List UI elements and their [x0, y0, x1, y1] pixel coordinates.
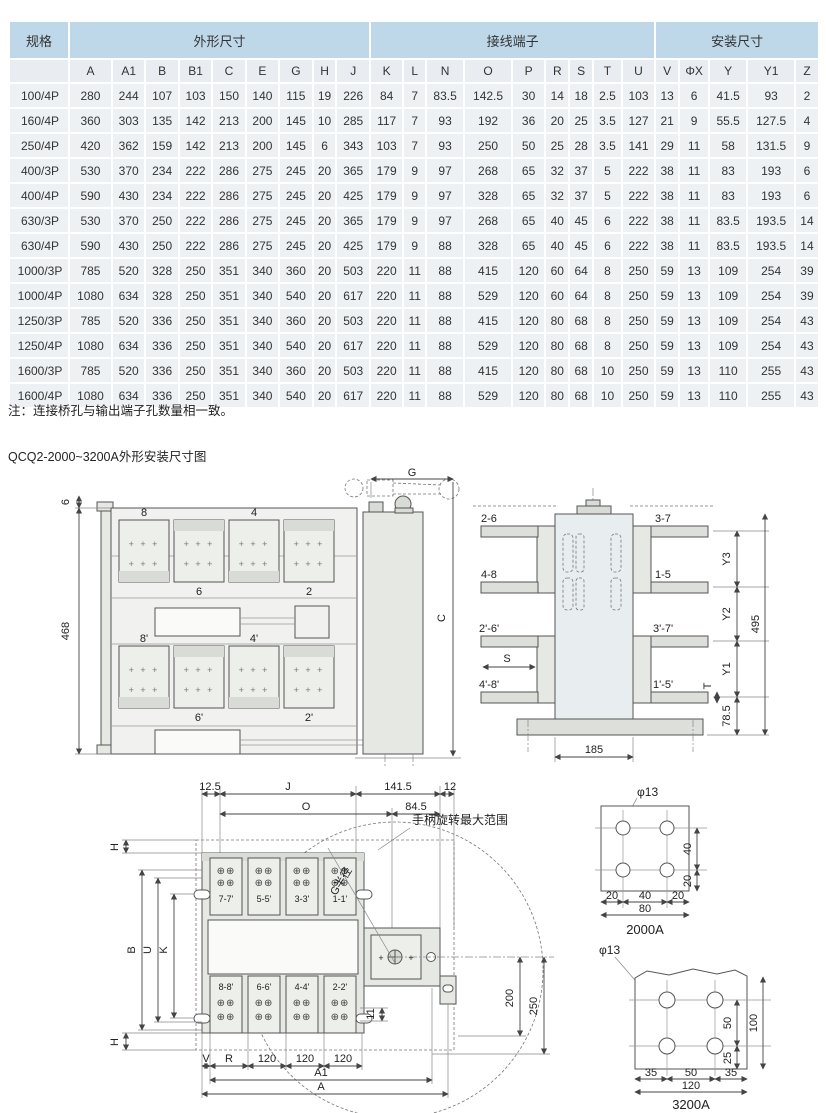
value-cell: 634	[113, 284, 144, 307]
value-cell: 1080	[70, 284, 111, 307]
value-cell: 360	[280, 359, 311, 382]
value-cell: 14	[796, 209, 818, 232]
svg-text:+ + +: + + +	[129, 559, 160, 569]
value-cell: 365	[337, 159, 368, 182]
value-cell: 93	[427, 109, 463, 132]
value-cell: 303	[113, 109, 144, 132]
value-cell: 530	[70, 209, 111, 232]
column-header: P	[513, 60, 544, 82]
dim-C: C	[436, 614, 448, 622]
value-cell: 142.5	[465, 84, 511, 107]
value-cell: 254	[748, 259, 794, 282]
dim-185: 185	[585, 744, 603, 756]
svg-text:⊕⊕: ⊕⊕	[293, 878, 312, 889]
dim-Y3: Y3	[721, 552, 733, 565]
value-cell: 503	[337, 309, 368, 332]
value-cell: 286	[213, 209, 244, 232]
value-cell: 120	[513, 384, 544, 407]
drive-tower	[363, 512, 423, 754]
value-cell: 351	[213, 259, 244, 282]
value-cell: 109	[710, 334, 746, 357]
value-cell: 343	[337, 134, 368, 157]
value-cell: 11	[404, 359, 425, 382]
value-cell: 109	[710, 259, 746, 282]
value-cell: 222	[623, 184, 654, 207]
value-cell: 222	[180, 184, 211, 207]
table-row: 100/4P2802441071031501401151922684783.51…	[10, 84, 818, 107]
spec-cell: 1000/4P	[10, 284, 68, 307]
value-cell: 68	[570, 309, 592, 332]
dim-B: B	[126, 946, 138, 953]
base-plate	[517, 719, 703, 735]
value-cell: 340	[247, 259, 278, 282]
value-cell: 20	[546, 109, 568, 132]
value-cell: 59	[656, 384, 678, 407]
value-cell: 45	[570, 209, 592, 232]
value-cell: 529	[465, 334, 511, 357]
value-cell: 21	[656, 109, 678, 132]
value-cell: 13	[680, 259, 708, 282]
value-cell: 222	[623, 159, 654, 182]
svg-text:35: 35	[725, 1067, 737, 1079]
value-cell: 222	[623, 209, 654, 232]
column-header: B1	[180, 60, 211, 82]
dim-H-bottom: H	[109, 1038, 121, 1046]
table-row: 1000/4P108063432825035134054020617220118…	[10, 284, 818, 307]
value-cell: 20	[314, 259, 336, 282]
value-cell: 14	[546, 84, 568, 107]
svg-text:+ + +: + + +	[184, 539, 215, 549]
value-cell: 634	[113, 334, 144, 357]
value-cell: 150	[213, 84, 244, 107]
terminal-label-8p: 8'	[140, 633, 148, 645]
value-cell: 8	[594, 334, 621, 357]
value-cell: 250	[623, 259, 654, 282]
value-cell: 213	[213, 109, 244, 132]
value-cell: 540	[280, 284, 311, 307]
svg-text:⊕⊕: ⊕⊕	[293, 998, 312, 1009]
value-cell: 244	[113, 84, 144, 107]
value-cell: 20	[314, 359, 336, 382]
value-cell: 5	[594, 159, 621, 182]
column-group-header: 规格	[10, 22, 68, 58]
table-header-columns: AA1BB1CEGHJKLNOPRSTUVΦXYY1Z	[10, 60, 818, 82]
svg-text:+ + +: + + +	[294, 685, 325, 695]
value-cell: 193	[748, 159, 794, 182]
value-cell: 38	[656, 184, 678, 207]
value-cell: 1080	[70, 334, 111, 357]
value-cell: 68	[570, 384, 592, 407]
terminal-3p7p: 3'-7'	[653, 623, 673, 635]
value-cell: 6	[594, 209, 621, 232]
value-cell: 220	[371, 359, 402, 382]
dim-84-5: 84.5	[405, 801, 426, 813]
svg-text:⊕⊕: ⊕⊕	[217, 998, 236, 1009]
caption-2000A: 2000A	[626, 922, 664, 937]
value-cell: 65	[513, 184, 544, 207]
value-cell: 65	[513, 209, 544, 232]
caption-3200A: 3200A	[672, 1097, 710, 1112]
value-cell: 9	[404, 209, 425, 232]
column-group-header: 安装尺寸	[656, 22, 818, 58]
value-cell: 80	[546, 384, 568, 407]
value-cell: 83.5	[427, 84, 463, 107]
value-cell: 80	[546, 309, 568, 332]
value-cell: 179	[371, 234, 402, 257]
value-cell: 64	[570, 284, 592, 307]
value-cell: 6	[680, 84, 708, 107]
phi-13-label-2: φ13	[599, 943, 620, 957]
value-cell: 142	[180, 109, 211, 132]
column-header: C	[213, 60, 244, 82]
value-cell: 38	[656, 209, 678, 232]
value-cell: 425	[337, 184, 368, 207]
value-cell: 58	[710, 134, 746, 157]
dim-S: S	[503, 653, 510, 665]
terminal-15: 1-5	[655, 569, 671, 581]
value-cell: 135	[146, 109, 177, 132]
value-cell: 250	[180, 334, 211, 357]
value-cell: 3.5	[594, 109, 621, 132]
value-cell: 39	[796, 284, 818, 307]
value-cell: 275	[247, 159, 278, 182]
column-header: S	[570, 60, 592, 82]
value-cell: 7	[404, 134, 425, 157]
svg-text:+ + +: + + +	[294, 559, 325, 569]
value-cell: 6	[796, 184, 818, 207]
svg-text:⊕⊕: ⊕⊕	[255, 866, 274, 877]
value-cell: 109	[710, 309, 746, 332]
datasheet-page: 规格外形尺寸接线端子安装尺寸 AA1BB1CEGHJKLNOPRSTUVΦXYY…	[0, 0, 826, 1113]
svg-text:⊕⊕: ⊕⊕	[255, 878, 274, 889]
value-cell: 68	[570, 359, 592, 382]
table-row: 1250/4P108063433625035134054020617220118…	[10, 334, 818, 357]
value-cell: 103	[371, 134, 402, 157]
value-cell: 254	[748, 309, 794, 332]
value-cell: 9	[404, 159, 425, 182]
table-row: 630/3P5303702502222862752452036517999726…	[10, 209, 818, 232]
value-cell: 11	[404, 309, 425, 332]
value-cell: 13	[656, 84, 678, 107]
value-cell: 65	[513, 159, 544, 182]
table-row: 1000/3P785520328250351340360205032201188…	[10, 259, 818, 282]
value-cell: 84	[371, 84, 402, 107]
value-cell: 220	[371, 309, 402, 332]
value-cell: 785	[70, 259, 111, 282]
dim-50: 50	[722, 1017, 734, 1029]
column-header: J	[337, 60, 368, 82]
value-cell: 213	[213, 134, 244, 157]
column-header: Y	[710, 60, 746, 82]
value-cell: 351	[213, 309, 244, 332]
value-cell: 11	[404, 334, 425, 357]
value-cell: 59	[656, 284, 678, 307]
svg-text:⊕⊕: ⊕⊕	[293, 1012, 312, 1023]
svg-text:⊕⊕: ⊕⊕	[255, 1012, 274, 1023]
svg-text:+ + +: + + +	[294, 539, 325, 549]
terminal-1p5p: 1'-5'	[653, 679, 673, 691]
value-cell: 88	[427, 259, 463, 282]
terminal-66: 6-6'	[257, 982, 272, 992]
value-cell: 245	[280, 184, 311, 207]
value-cell: 785	[70, 359, 111, 382]
value-cell: 255	[748, 359, 794, 382]
value-cell: 425	[337, 234, 368, 257]
value-cell: 250	[180, 359, 211, 382]
value-cell: 222	[180, 159, 211, 182]
value-cell: 145	[280, 134, 311, 157]
value-cell: 8	[594, 284, 621, 307]
value-cell: 430	[113, 234, 144, 257]
value-cell: 115	[280, 84, 311, 107]
value-cell: 336	[146, 334, 177, 357]
value-cell: 179	[371, 184, 402, 207]
value-cell: 64	[570, 259, 592, 282]
dim-11: 11	[365, 1008, 377, 1019]
hole-pattern-2000A: φ13 40 20 20 40 20 80 2000A	[595, 785, 707, 937]
table-row: 630/4P5904302502222862752452042517998832…	[10, 234, 818, 257]
value-cell: 120	[513, 309, 544, 332]
side-view-drawing: 2-6 4-8 2'-6' S 4'-8' 3-7 1-5 3'-7' 1'-5…	[465, 486, 820, 771]
dim-J: J	[285, 781, 291, 793]
value-cell: 340	[247, 384, 278, 407]
value-cell: 40	[546, 234, 568, 257]
svg-text:40: 40	[639, 890, 651, 902]
spec-cell: 100/4P	[10, 84, 68, 107]
spec-cell: 400/3P	[10, 159, 68, 182]
value-cell: 88	[427, 384, 463, 407]
value-cell: 103	[180, 84, 211, 107]
value-cell: 120	[513, 259, 544, 282]
value-cell: 103	[623, 84, 654, 107]
value-cell: 200	[247, 134, 278, 157]
svg-text:+ + +: + + +	[184, 559, 215, 569]
value-cell: 13	[680, 309, 708, 332]
column-header: V	[656, 60, 678, 82]
dim-25: 25	[722, 1052, 734, 1064]
value-cell: 20	[314, 284, 336, 307]
value-cell: 360	[280, 309, 311, 332]
value-cell: 520	[113, 309, 144, 332]
value-cell: 88	[427, 359, 463, 382]
value-cell: 250	[180, 309, 211, 332]
terminal-label-6: 6	[196, 586, 202, 598]
value-cell: 193.5	[748, 234, 794, 257]
value-cell: 226	[337, 84, 368, 107]
value-cell: 6	[594, 234, 621, 257]
column-header: B	[146, 60, 177, 82]
value-cell: 529	[465, 284, 511, 307]
value-cell: 6	[314, 134, 336, 157]
value-cell: 2	[796, 84, 818, 107]
svg-text:120: 120	[334, 1053, 352, 1065]
value-cell: 109	[710, 284, 746, 307]
value-cell: 255	[748, 384, 794, 407]
value-cell: 10	[314, 109, 336, 132]
dim-H-top: H	[109, 843, 121, 851]
svg-text:+ + +: + + +	[129, 665, 160, 675]
value-cell: 20	[314, 184, 336, 207]
value-cell: 286	[213, 234, 244, 257]
value-cell: 250	[146, 234, 177, 257]
value-cell: 200	[247, 109, 278, 132]
value-cell: 50	[513, 134, 544, 157]
table-row: 400/4P5904302342222862752452042517999732…	[10, 184, 818, 207]
value-cell: 351	[213, 284, 244, 307]
dim-T: T	[702, 682, 714, 689]
value-cell: 131.5	[748, 134, 794, 157]
value-cell: 360	[70, 109, 111, 132]
terminal-label-2: 2	[306, 586, 312, 598]
column-header: U	[623, 60, 654, 82]
spec-cell: 250/4P	[10, 134, 68, 157]
svg-text:+ + +: + + +	[239, 665, 270, 675]
value-cell: 245	[280, 234, 311, 257]
value-cell: 93	[748, 84, 794, 107]
dim-100: 100	[748, 1014, 760, 1032]
svg-text:120: 120	[296, 1053, 314, 1065]
value-cell: 9	[404, 234, 425, 257]
value-cell: 245	[280, 159, 311, 182]
value-cell: 415	[465, 359, 511, 382]
value-cell: 32	[546, 184, 568, 207]
dim-78-5: 78.5	[721, 705, 733, 726]
value-cell: 234	[146, 184, 177, 207]
dim-A: A	[317, 1081, 325, 1093]
dim-A1: A1	[314, 1067, 327, 1079]
figure-title: QCQ2-2000~3200A外形安装尺寸图	[8, 446, 206, 465]
value-cell: 10	[594, 359, 621, 382]
front-view-drawing: + + + + + + + + + + + + + + + + + + + + …	[55, 468, 470, 770]
dim-O: O	[302, 801, 311, 813]
value-cell: 415	[465, 259, 511, 282]
value-cell: 159	[146, 134, 177, 157]
dim-80: 80	[639, 903, 651, 915]
value-cell: 351	[213, 334, 244, 357]
value-cell: 7	[404, 109, 425, 132]
spec-cell: 1600/3P	[10, 359, 68, 382]
column-group-header: 接线端子	[371, 22, 654, 58]
value-cell: 520	[113, 259, 144, 282]
spec-cell: 1000/3P	[10, 259, 68, 282]
table-header-groups: 规格外形尺寸接线端子安装尺寸	[10, 22, 818, 58]
terminal-label-8: 8	[141, 507, 147, 519]
value-cell: 275	[247, 234, 278, 257]
value-cell: 88	[427, 334, 463, 357]
value-cell: 503	[337, 359, 368, 382]
value-cell: 222	[623, 234, 654, 257]
terminal-22: 2-2'	[333, 982, 348, 992]
value-cell: 8	[594, 309, 621, 332]
value-cell: 328	[465, 234, 511, 257]
column-header: N	[427, 60, 463, 82]
value-cell: 145	[280, 109, 311, 132]
column-header: H	[314, 60, 336, 82]
value-cell: 83.5	[710, 209, 746, 232]
value-cell: 59	[656, 309, 678, 332]
value-cell: 88	[427, 309, 463, 332]
value-cell: 590	[70, 234, 111, 257]
value-cell: 250	[623, 309, 654, 332]
value-cell: 336	[146, 309, 177, 332]
value-cell: 13	[680, 334, 708, 357]
value-cell: 179	[371, 159, 402, 182]
value-cell: 179	[371, 209, 402, 232]
value-cell: 13	[680, 359, 708, 382]
value-cell: 193.5	[748, 209, 794, 232]
value-cell: 20	[314, 384, 336, 407]
value-cell: 11	[680, 209, 708, 232]
svg-text:⊕⊕: ⊕⊕	[293, 866, 312, 877]
value-cell: 120	[513, 334, 544, 357]
svg-text:+ + +: + + +	[239, 559, 270, 569]
value-cell: 11	[680, 159, 708, 182]
column-header: A	[70, 60, 111, 82]
table-row: 1600/3P785520336250351340360205032201188…	[10, 359, 818, 382]
value-cell: 13	[680, 284, 708, 307]
value-cell: 4	[796, 109, 818, 132]
value-cell: 83.5	[710, 234, 746, 257]
value-cell: 59	[656, 359, 678, 382]
svg-text:20: 20	[672, 890, 684, 902]
dim-V: V	[202, 1053, 210, 1065]
value-cell: 286	[213, 159, 244, 182]
column-header: G	[280, 60, 311, 82]
spec-cell: 160/4P	[10, 109, 68, 132]
value-cell: 32	[546, 159, 568, 182]
dim-Y1: Y1	[721, 662, 733, 675]
value-cell: 14	[796, 234, 818, 257]
column-group-header: 外形尺寸	[70, 22, 369, 58]
value-cell: 9	[404, 184, 425, 207]
bracket	[101, 502, 111, 754]
dim-G: G	[408, 468, 417, 479]
value-cell: 370	[113, 209, 144, 232]
dim-R: R	[225, 1053, 233, 1065]
value-cell: 340	[247, 309, 278, 332]
dim-120: 120	[682, 1080, 700, 1092]
value-cell: 250	[623, 384, 654, 407]
value-cell: 36	[513, 109, 544, 132]
value-cell: 43	[796, 334, 818, 357]
value-cell: 617	[337, 384, 368, 407]
value-cell: 250	[146, 209, 177, 232]
value-cell: 245	[280, 209, 311, 232]
value-cell: 38	[656, 159, 678, 182]
value-cell: 9	[796, 134, 818, 157]
dim-6: 6	[60, 499, 72, 505]
value-cell: 18	[570, 84, 592, 107]
value-cell: 415	[465, 309, 511, 332]
terminal-label-4p: 4'	[250, 633, 258, 645]
table-row: 250/4P4203621591422132001456343103793250…	[10, 134, 818, 157]
value-cell: 286	[213, 184, 244, 207]
value-cell: 275	[247, 184, 278, 207]
svg-text:50: 50	[685, 1067, 697, 1079]
value-cell: 11	[404, 259, 425, 282]
value-cell: 250	[623, 334, 654, 357]
value-cell: 617	[337, 284, 368, 307]
value-cell: 25	[546, 134, 568, 157]
value-cell: 520	[113, 359, 144, 382]
hole-pattern-3200A: φ13 50 25 100 35 50 35 120 3200A	[599, 943, 771, 1112]
value-cell: 420	[70, 134, 111, 157]
value-cell: 540	[280, 334, 311, 357]
dim-20: 20	[682, 875, 694, 887]
svg-text:⊕⊕: ⊕⊕	[217, 878, 236, 889]
terminal-48: 4-8	[481, 569, 497, 581]
value-cell: 785	[70, 309, 111, 332]
